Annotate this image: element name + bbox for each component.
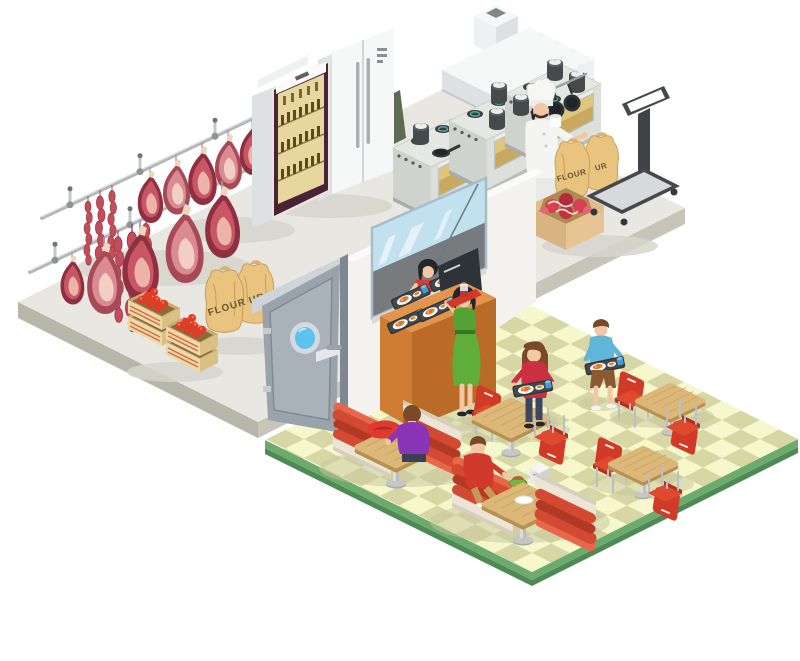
green-dress-skirt xyxy=(452,334,480,386)
door-hinge xyxy=(263,328,271,334)
door-hinge xyxy=(263,386,271,392)
white-plate xyxy=(515,496,533,504)
fridge-handle-left xyxy=(356,62,360,148)
restaurant-isometric-illustration: UR FLOUR xyxy=(0,0,800,661)
fridge-handle-right xyxy=(367,58,371,144)
scene-canvas: UR FLOUR xyxy=(0,0,800,661)
